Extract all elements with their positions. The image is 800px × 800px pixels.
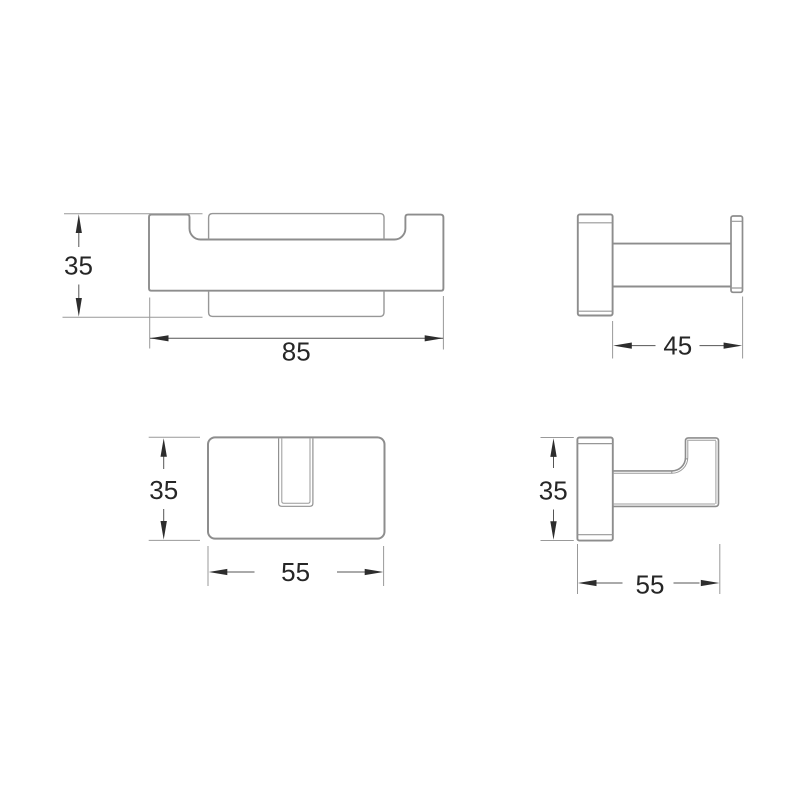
svg-text:35: 35: [539, 476, 568, 506]
svg-text:85: 85: [282, 337, 311, 367]
svg-text:55: 55: [281, 557, 310, 587]
svg-text:55: 55: [636, 569, 665, 599]
svg-text:35: 35: [64, 250, 93, 280]
svg-text:35: 35: [149, 475, 178, 505]
svg-text:45: 45: [663, 331, 692, 361]
